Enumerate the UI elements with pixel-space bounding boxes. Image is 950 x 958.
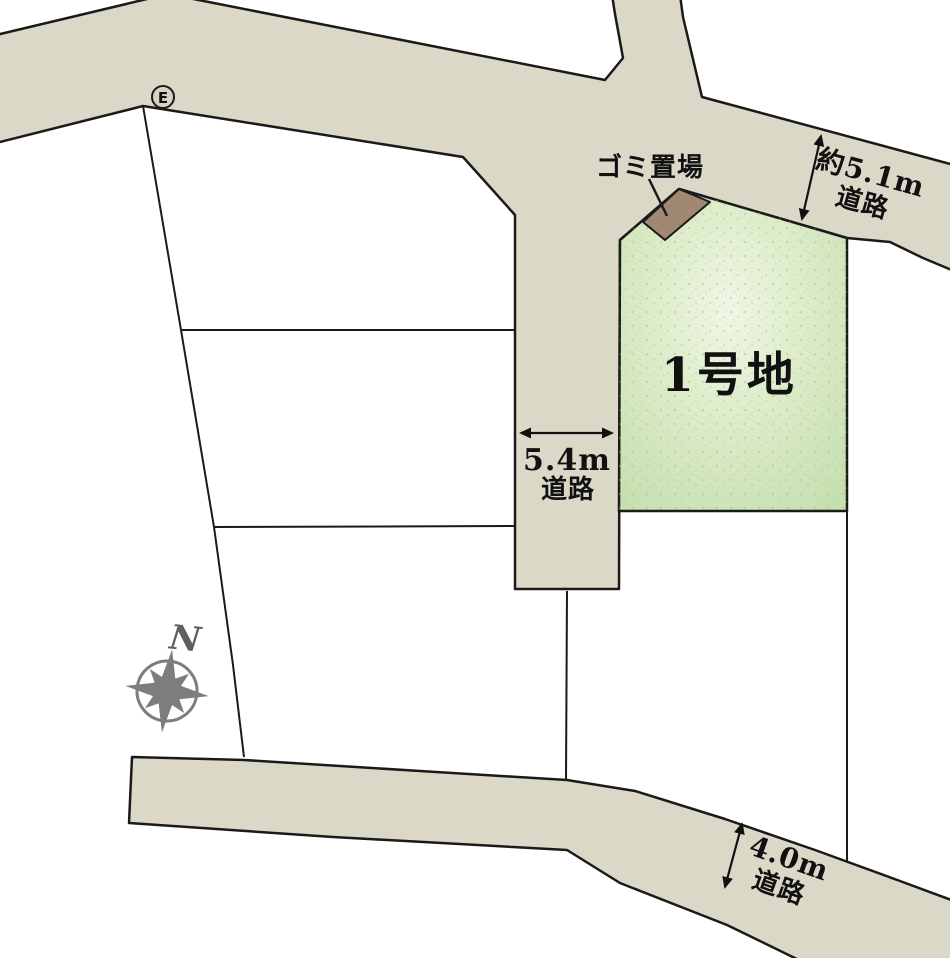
lot-map-diagram: 1号地 ゴミ置場 約5.1m 道路 5.4m 道路 4.0m 道路 N [0, 0, 950, 958]
garbage-label: ゴミ置場 [596, 152, 704, 183]
parcel-divider-south [566, 591, 567, 780]
road-5-4m-width-label: 5.4m [523, 443, 611, 478]
north-label: N [167, 617, 205, 660]
e-marker-label: E [158, 89, 168, 107]
compass-rose [120, 644, 214, 738]
e-marker: E [152, 86, 174, 108]
parcel-divider-lower [214, 526, 516, 527]
site-plan-svg: 1号地 ゴミ置場 約5.1m 道路 5.4m 道路 4.0m 道路 N [0, 0, 950, 958]
lot-1-label: 1号地 [661, 348, 797, 403]
road-5-4m-name-label: 道路 [541, 474, 595, 505]
lot-1-parcel: 1号地 [619, 189, 847, 511]
compass-star-major [120, 644, 214, 738]
